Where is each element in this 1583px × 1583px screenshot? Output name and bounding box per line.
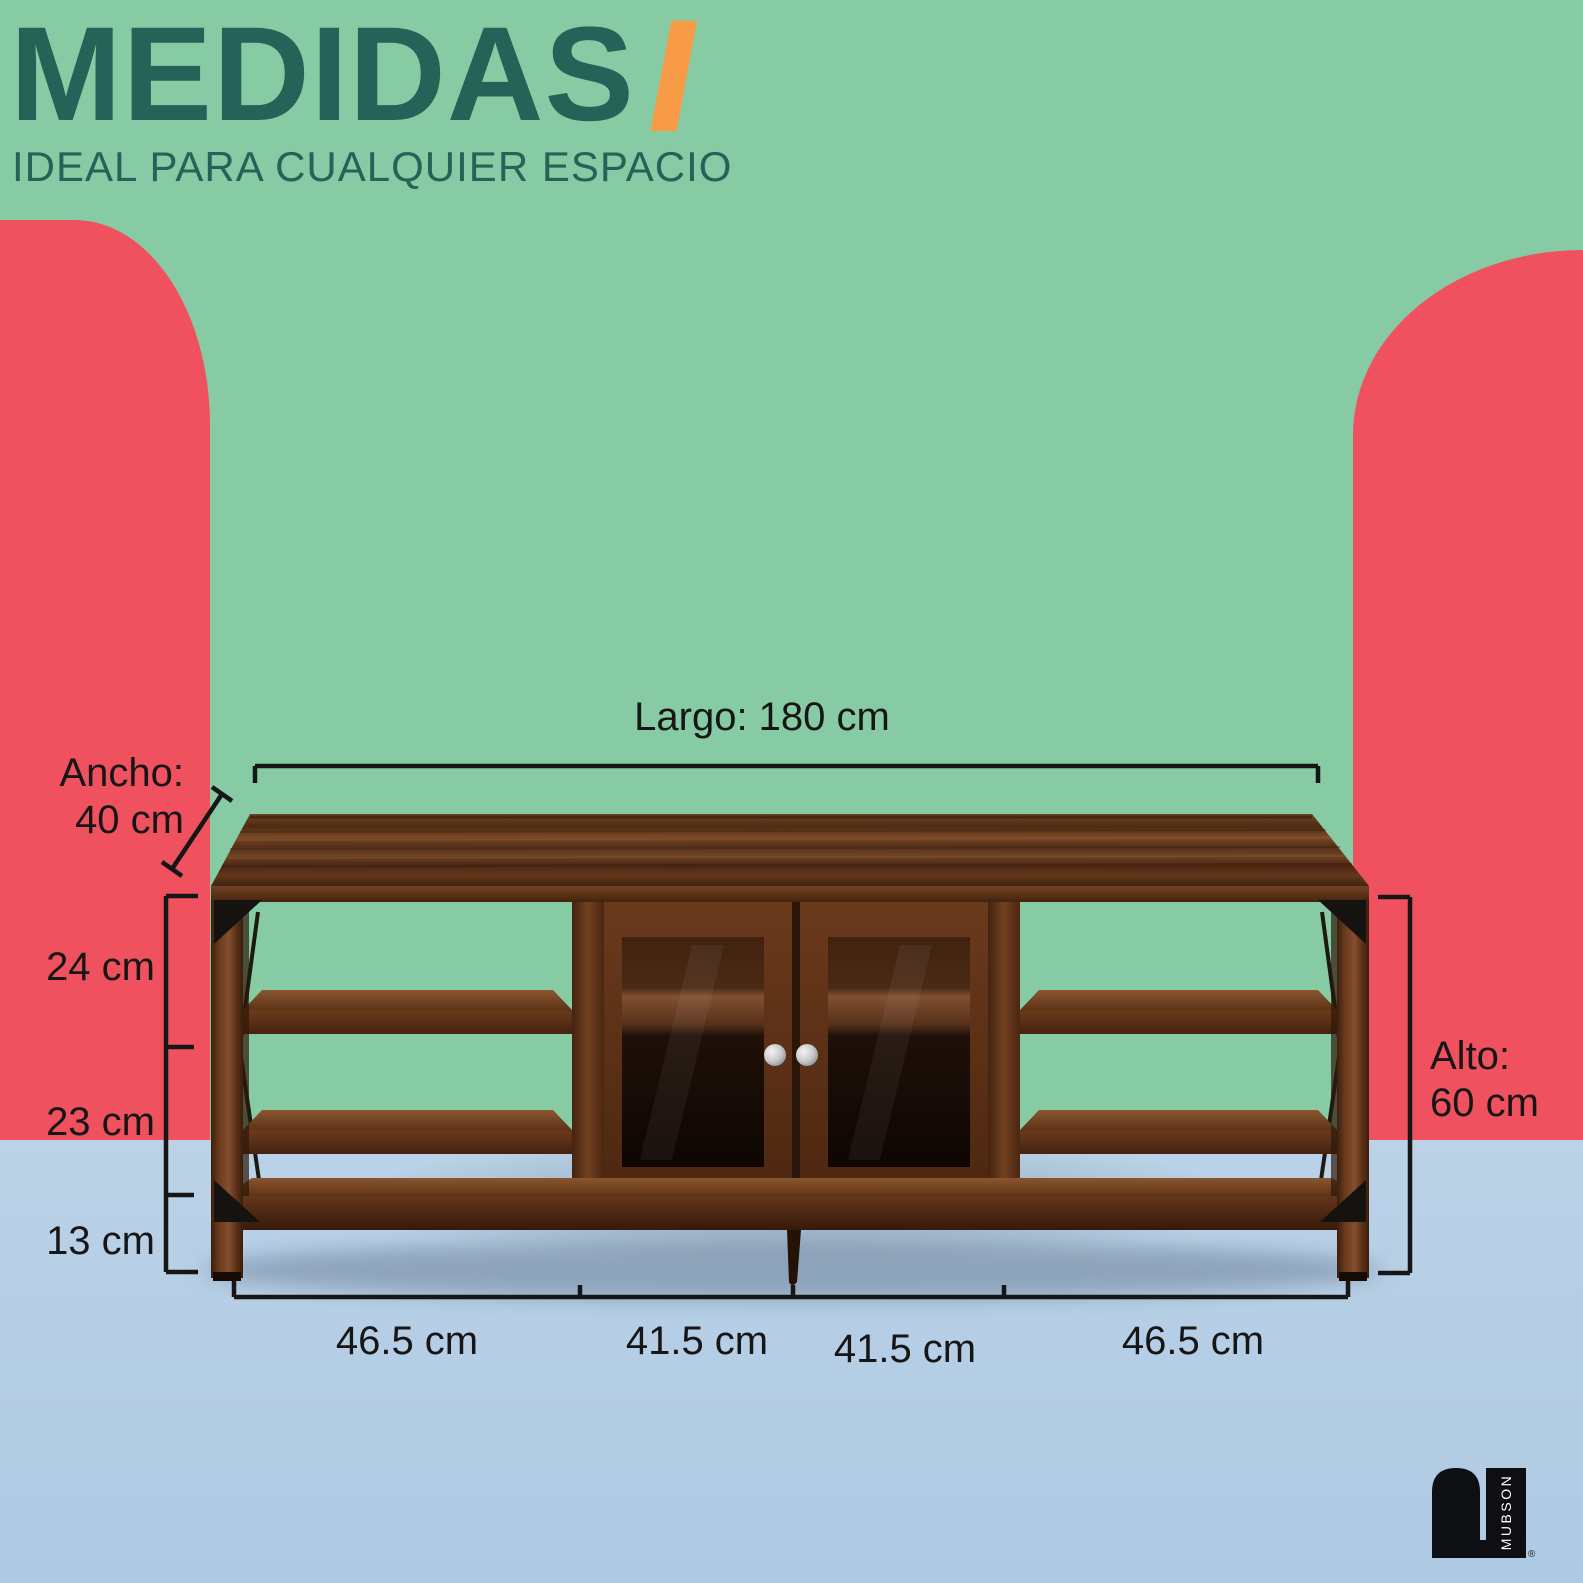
infographic-canvas: MEDIDAS // IDEAL PARA CUALQUIER ESPACIO xyxy=(0,0,1583,1583)
right-shelves xyxy=(1020,990,1337,1154)
page-subtitle: IDEAL PARA CUALQUIER ESPACIO xyxy=(12,143,732,191)
bottom-segment-label-2: 41.5 cm xyxy=(597,1318,797,1365)
page-title: MEDIDAS xyxy=(10,8,635,142)
title-slashes-accent: // xyxy=(649,4,706,152)
length-dimension-line xyxy=(255,766,1318,783)
top-slab xyxy=(211,814,1369,902)
left-shelves xyxy=(243,990,572,1154)
depth-label-line1: Ancho: xyxy=(18,750,184,797)
length-label: Largo: 180 cm xyxy=(462,694,1062,741)
door-knob-right xyxy=(796,1044,818,1066)
depth-label: Ancho: 40 cm xyxy=(18,750,184,844)
left-segment-label-13: 13 cm xyxy=(5,1218,155,1265)
header: MEDIDAS // xyxy=(10,8,706,156)
bottom-segment-label-3: 41.5 cm xyxy=(805,1326,1005,1373)
left-segment-label-23: 23 cm xyxy=(5,1099,155,1146)
height-label: Alto: 60 cm xyxy=(1430,1033,1539,1127)
bottom-segment-label-4: 46.5 cm xyxy=(1093,1318,1293,1365)
depth-label-line2: 40 cm xyxy=(18,797,184,844)
left-arch-shape xyxy=(0,220,210,1140)
height-label-line1: Alto: xyxy=(1430,1033,1539,1080)
height-label-line2: 60 cm xyxy=(1430,1080,1539,1127)
door-knob-left xyxy=(764,1044,786,1066)
right-arch-shape xyxy=(1353,250,1583,1140)
bottom-segment-label-1: 46.5 cm xyxy=(307,1318,507,1365)
left-segment-label-24: 24 cm xyxy=(5,944,155,991)
